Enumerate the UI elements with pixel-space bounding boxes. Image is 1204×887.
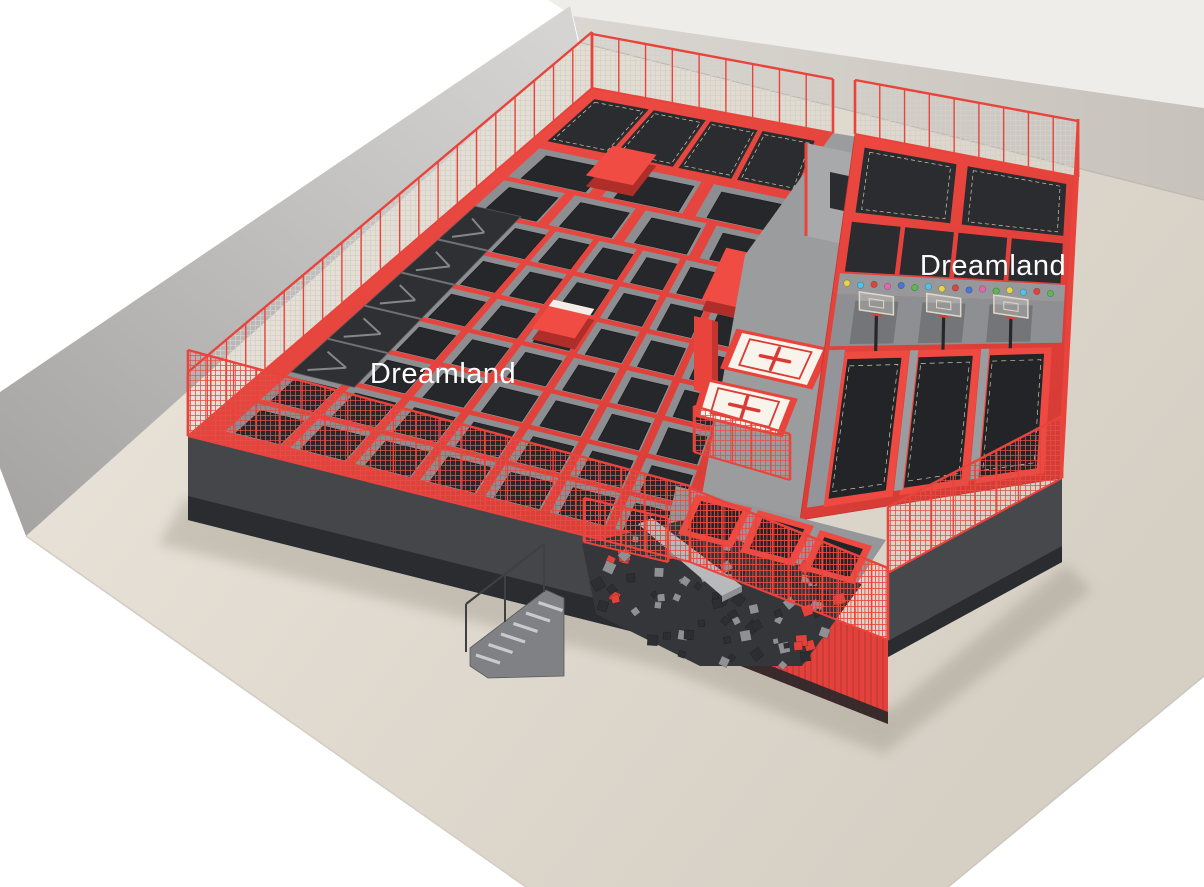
brand-label-right: Dreamland	[920, 250, 1066, 282]
colored-ball	[925, 283, 931, 289]
colored-ball	[884, 283, 890, 289]
colored-ball	[844, 280, 850, 286]
brand-label-left: Dreamland	[370, 358, 516, 390]
colored-ball	[993, 288, 999, 294]
foam-cube	[698, 620, 705, 627]
colored-ball	[1047, 290, 1053, 296]
colored-ball	[1007, 287, 1013, 293]
foam-cube	[713, 593, 719, 599]
foam-cube	[783, 643, 789, 649]
colored-ball	[966, 287, 972, 293]
trampoline-park-render: Dreamland Dreamland	[0, 0, 1204, 887]
colored-ball	[1020, 289, 1026, 295]
colored-ball	[912, 284, 918, 290]
foam-cube	[684, 630, 694, 640]
colored-ball	[1034, 288, 1040, 294]
foam-cube	[627, 574, 636, 583]
colored-ball	[898, 282, 904, 288]
colored-ball	[979, 286, 985, 292]
foam-cube	[611, 594, 621, 604]
scene-canvas: Dreamland Dreamland	[0, 0, 1204, 887]
foam-cube	[739, 630, 751, 642]
foam-cube	[712, 598, 724, 609]
colored-ball	[939, 286, 945, 292]
vertical-trampoline	[845, 222, 901, 274]
foam-cube	[663, 632, 670, 639]
foam-cube	[749, 604, 760, 615]
foam-cube	[654, 602, 662, 609]
colored-ball	[857, 282, 863, 288]
foam-cube	[794, 642, 803, 651]
foam-cube	[800, 651, 811, 662]
foam-cube	[723, 636, 731, 644]
foam-cube	[773, 638, 779, 644]
colored-ball	[952, 285, 958, 291]
colored-ball	[871, 281, 877, 287]
foam-cube	[654, 568, 664, 578]
foam-cube	[647, 635, 658, 646]
